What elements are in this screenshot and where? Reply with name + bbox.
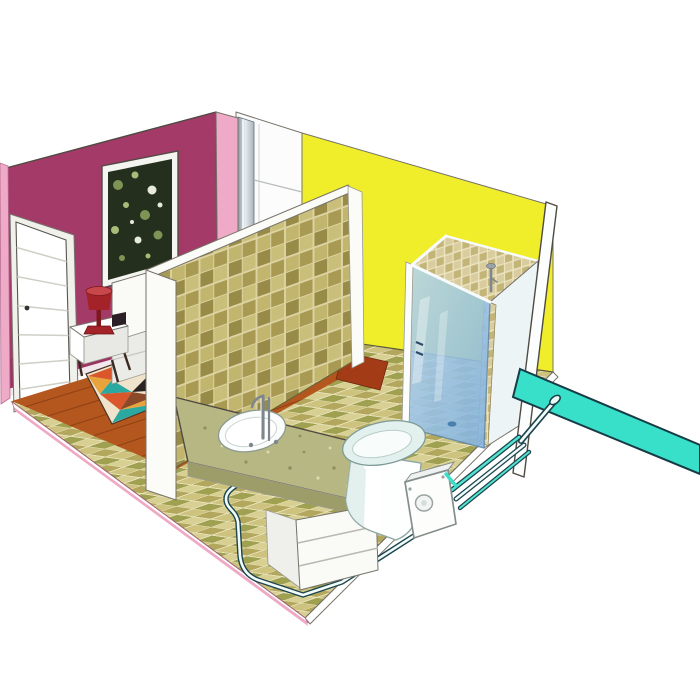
pump-cap-center xyxy=(421,500,427,506)
toilet-body-highlight xyxy=(364,470,380,531)
pump-bolt xyxy=(441,475,444,478)
pink-wall-cut-edge-left xyxy=(0,163,10,404)
cutaway-scene: cutaway-3d-view-bedroom-and-ensuite-bath… xyxy=(0,0,700,700)
faucet-handle xyxy=(249,443,253,447)
bathroom-cutaway-illustration: cutaway-3d-view-bedroom-and-ensuite-bath… xyxy=(0,0,700,700)
lamp-stem xyxy=(97,308,102,326)
shower-head xyxy=(487,263,496,268)
picture-art xyxy=(108,159,172,280)
lamp-shade-top xyxy=(86,287,112,296)
shower-drain xyxy=(448,421,457,426)
door-handle xyxy=(25,306,30,311)
shower-stall xyxy=(402,236,538,448)
macerator-pump xyxy=(405,462,456,538)
pump-bolt xyxy=(408,487,411,490)
partition-end-cap-left xyxy=(146,270,176,500)
lamp-base xyxy=(84,326,114,334)
bedroom-door xyxy=(10,214,78,412)
faucet-handle xyxy=(274,440,278,444)
